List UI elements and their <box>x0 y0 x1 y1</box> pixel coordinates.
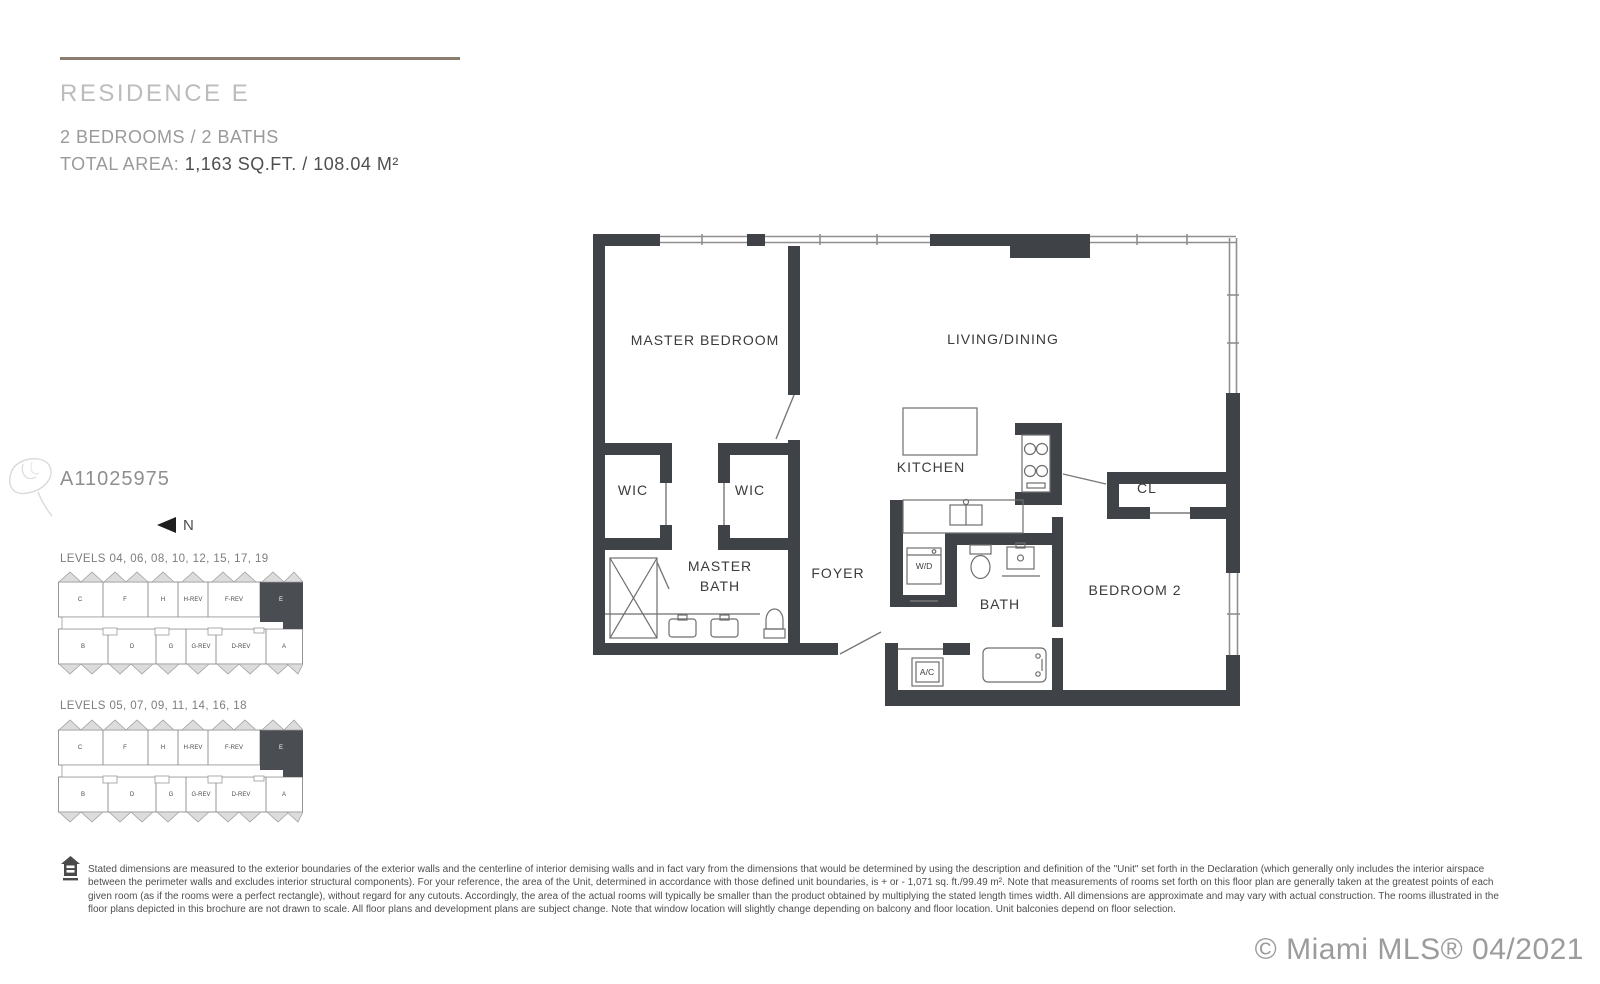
keyplan-unit-label: D <box>130 792 134 798</box>
keyplan-unit-label-highlighted: E <box>279 597 283 603</box>
north-label: N <box>183 517 194 534</box>
keyplan-unit-label: A <box>282 792 286 798</box>
room-label-living-dining: LIVING/DINING <box>947 331 1059 347</box>
keyplan-unit-label-highlighted: E <box>279 745 283 751</box>
room-label-closet: CL <box>1137 480 1157 496</box>
room-label-kitchen: KITCHEN <box>897 459 965 475</box>
keyplan-unit-label: D-REV <box>232 644 251 650</box>
keyplan-unit-label: H <box>161 597 165 603</box>
kitchen-island <box>903 408 977 455</box>
keyplan-2-levels-label: LEVELS 05, 07, 09, 11, 14, 16, 18 <box>60 700 247 712</box>
keyplan-unit-label: G <box>169 792 174 798</box>
keyplan-unit-label: C <box>78 597 82 603</box>
keyplan-2: C F H H-REV F-REV E B D G G-REV D-REV A <box>58 718 303 824</box>
keyplan-unit-label: F-REV <box>225 745 243 751</box>
keyplan-1: C F H H-REV F-REV E B D G G-REV D-REV A <box>58 570 303 676</box>
mls-number: A11025975 <box>60 468 170 491</box>
keyplan-unit-label: H-REV <box>184 745 203 751</box>
keyplan-unit-label: F <box>123 597 127 603</box>
keyplan-unit-label: G-REV <box>191 792 210 798</box>
keyplan-1-diagram <box>58 570 303 676</box>
total-area-label: TOTAL AREA: <box>60 154 179 174</box>
keyplan-unit-label: D-REV <box>232 792 251 798</box>
room-label-bath: BATH <box>980 596 1020 612</box>
master-toilet <box>764 609 785 638</box>
room-label-master-bedroom: MASTER BEDROOM <box>631 332 780 348</box>
room-label-foyer: FOYER <box>811 565 864 581</box>
bath-sink <box>1002 543 1040 576</box>
doors <box>657 395 1190 654</box>
keyplan-unit-label: D <box>130 644 134 650</box>
north-arrow: N <box>156 516 194 534</box>
stove <box>1022 435 1050 492</box>
floorplan: MASTER BEDROOM LIVING/DINING WIC WIC KIT… <box>590 228 1240 710</box>
page-title: RESIDENCE E <box>60 80 250 108</box>
room-label-ac: A/C <box>920 667 934 677</box>
keyplan-highlighted-unit <box>260 730 303 777</box>
keyplan-unit-label: B <box>81 792 85 798</box>
sketch-logo-icon <box>2 452 58 518</box>
keyplan-unit-label: G-REV <box>191 644 210 650</box>
north-arrow-icon <box>156 516 178 534</box>
floorplan-brochure-page: RESIDENCE E 2 BEDROOMS / 2 BATHS TOTAL A… <box>0 0 1600 984</box>
keyplan-unit-label: H <box>161 745 165 751</box>
disclaimer-text: Stated dimensions are measured to the ex… <box>88 863 1516 917</box>
header-accent-rule <box>60 57 460 60</box>
bedrooms-baths-subtitle: 2 BEDROOMS / 2 BATHS <box>60 127 279 148</box>
keyplan-unit-label: F <box>123 745 127 751</box>
room-label-wic-left: WIC <box>618 482 648 498</box>
room-label-washer-dryer: W/D <box>916 561 933 571</box>
equal-housing-icon <box>60 855 81 881</box>
room-label-wic-right: WIC <box>735 482 765 498</box>
bathtub <box>983 648 1046 682</box>
keyplan-unit-label: G <box>169 644 174 650</box>
keyplan-1-levels-label: LEVELS 04, 06, 08, 10, 12, 15, 17, 19 <box>60 553 269 565</box>
keyplan-unit-label: F-REV <box>225 597 243 603</box>
room-label-master-bath-2: BATH <box>700 578 740 594</box>
keyplan-highlighted-unit <box>260 582 303 629</box>
total-area-value: 1,163 SQ.FT. / 108.04 M² <box>185 154 399 174</box>
room-label-bedroom-2: BEDROOM 2 <box>1088 582 1181 598</box>
room-label-master-bath-1: MASTER <box>688 558 752 574</box>
mls-watermark: © Miami MLS® 04/2021 <box>1255 933 1584 967</box>
total-area-line: TOTAL AREA: 1,163 SQ.FT. / 108.04 M² <box>60 154 399 175</box>
keyplan-unit-label: B <box>81 644 85 650</box>
kitchen-counter-sink <box>903 500 1023 534</box>
keyplan-2-diagram <box>58 718 303 824</box>
keyplan-unit-label: C <box>78 745 82 751</box>
keyplan-unit-label: A <box>282 644 286 650</box>
keyplan-unit-label: H-REV <box>184 597 203 603</box>
shower <box>610 558 657 638</box>
bath-toilet <box>970 545 991 579</box>
vanity-sinks <box>605 614 760 637</box>
